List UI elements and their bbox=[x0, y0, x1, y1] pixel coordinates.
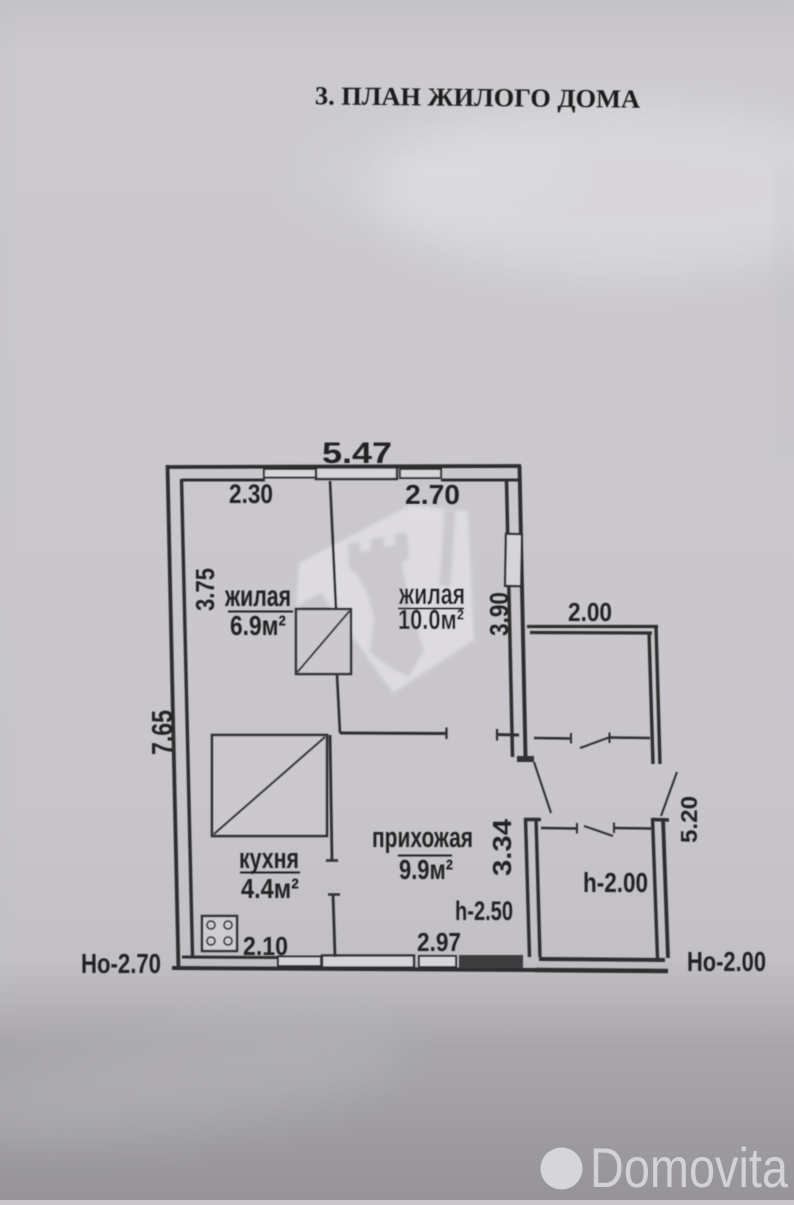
svg-text:5.20: 5.20 bbox=[676, 796, 702, 843]
svg-text:9.9м²: 9.9м² bbox=[399, 854, 453, 885]
svg-text:3. ПЛАН ЖИЛОГО ДОМА: 3. ПЛАН ЖИЛОГО ДОМА bbox=[315, 81, 641, 113]
svg-text:Но-2.00: Но-2.00 bbox=[687, 946, 766, 977]
svg-text:5.47: 5.47 bbox=[322, 437, 392, 470]
svg-text:2.30: 2.30 bbox=[229, 479, 273, 509]
svg-text:6.9м²: 6.9м² bbox=[230, 610, 286, 641]
svg-text:кухня: кухня bbox=[239, 843, 299, 875]
svg-text:прихожая: прихожая bbox=[372, 822, 473, 854]
svg-text:жилая: жилая bbox=[224, 580, 291, 613]
svg-text:2.10: 2.10 bbox=[243, 931, 288, 961]
svg-text:h-2.00: h-2.00 bbox=[583, 867, 648, 898]
svg-text:2.70: 2.70 bbox=[405, 479, 460, 510]
svg-text:7.65: 7.65 bbox=[147, 710, 179, 755]
svg-text:10.0м²: 10.0м² bbox=[398, 604, 464, 635]
svg-text:4.4м²: 4.4м² bbox=[241, 873, 299, 904]
svg-text:3.90: 3.90 bbox=[484, 592, 514, 636]
svg-text:Domovita: Domovita bbox=[590, 1136, 789, 1199]
svg-text:3.34: 3.34 bbox=[487, 818, 517, 876]
svg-text:3.75: 3.75 bbox=[190, 568, 220, 611]
svg-text:h-2.50: h-2.50 bbox=[455, 896, 513, 926]
svg-text:2.97: 2.97 bbox=[417, 927, 461, 957]
svg-text:2.00: 2.00 bbox=[568, 597, 612, 627]
svg-text:Но-2.70: Но-2.70 bbox=[81, 948, 161, 979]
